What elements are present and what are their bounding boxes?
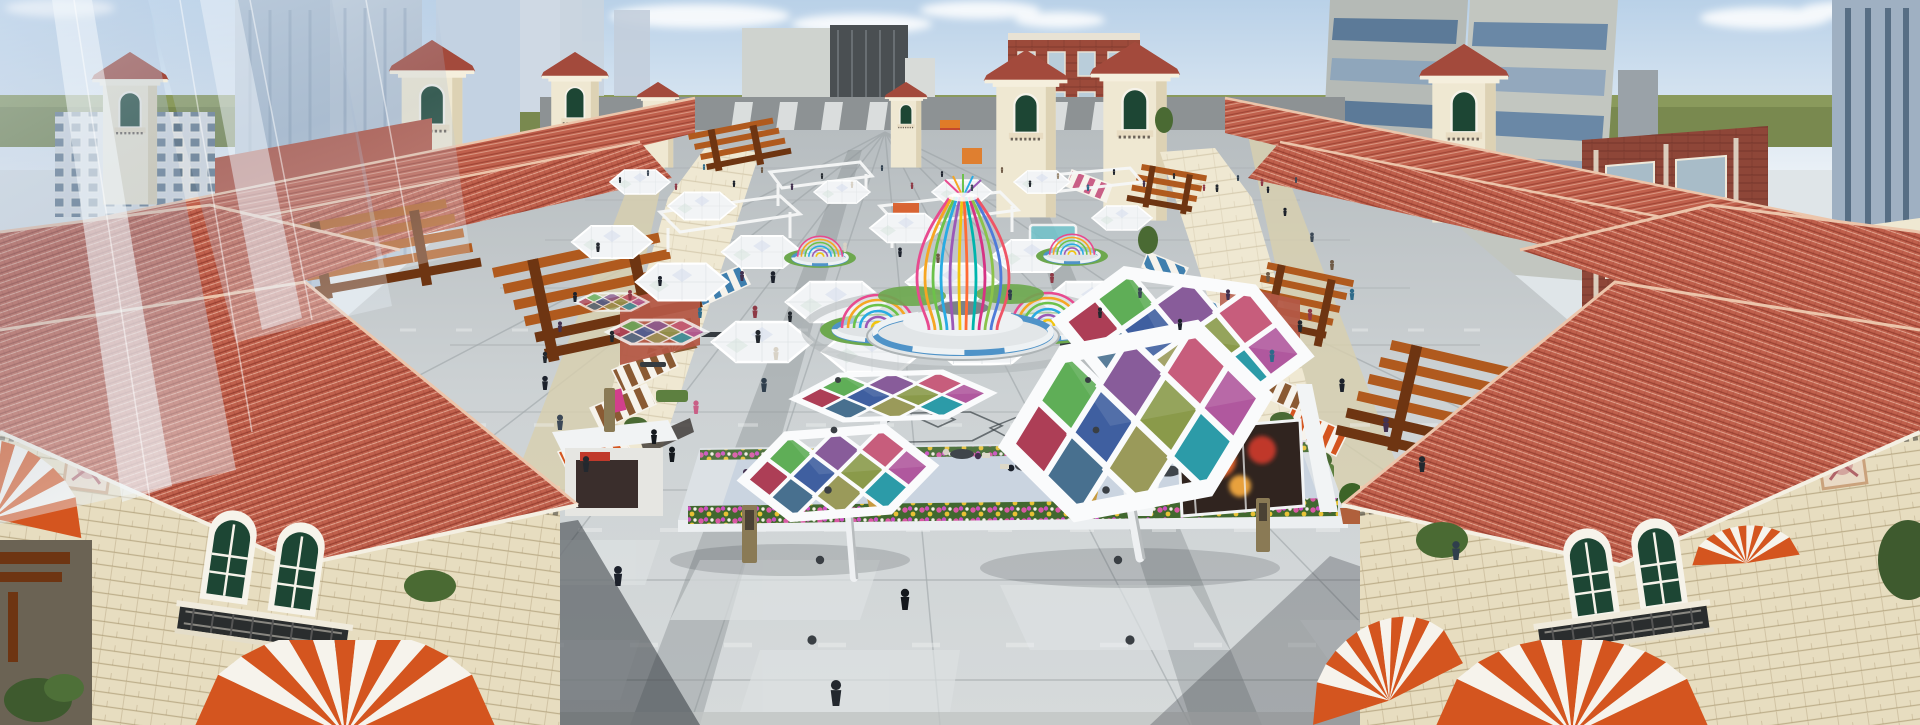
person-figure (1226, 289, 1230, 300)
person-figure (628, 290, 632, 300)
person-figure (1419, 456, 1425, 472)
person-figure (651, 429, 657, 444)
person-figure (1267, 187, 1270, 193)
person-figure (1178, 319, 1183, 330)
person-figure (557, 415, 563, 430)
person-figure (1113, 169, 1115, 175)
person-figure (1261, 179, 1264, 186)
person-figure (771, 271, 776, 283)
person-figure (543, 352, 548, 363)
person-figure (761, 167, 763, 173)
person-figure (703, 164, 705, 170)
person-figure (1098, 307, 1102, 318)
person-figure (831, 680, 842, 706)
person-figure (619, 177, 621, 183)
person-figure (669, 447, 675, 462)
person-figure (1050, 273, 1054, 283)
person-figure (941, 171, 943, 177)
person-figure (675, 184, 678, 190)
tile-roof-tower (884, 82, 927, 168)
person-figure (698, 307, 702, 318)
person-figure (791, 184, 794, 190)
person-figure (1308, 309, 1313, 320)
person-figure (542, 376, 548, 390)
person-figure (821, 173, 823, 179)
person-figure (1350, 289, 1355, 300)
architectural-rendering (0, 0, 1920, 725)
person-figure (1203, 185, 1206, 191)
person-figure (1295, 177, 1297, 183)
person-figure (740, 271, 744, 281)
person-figure (573, 292, 577, 302)
person-figure (1452, 541, 1460, 560)
person-figure (1143, 181, 1146, 187)
person-figure (1138, 287, 1142, 298)
person-figure (1237, 175, 1239, 181)
person-figure (558, 321, 562, 332)
person-figure (843, 243, 847, 252)
person-figure (1173, 173, 1175, 179)
person-figure (898, 248, 902, 257)
person-figure (1057, 173, 1059, 179)
person-figure (788, 311, 792, 322)
person-figure (1383, 417, 1389, 432)
wall-vine (404, 570, 456, 602)
person-figure (1339, 378, 1345, 392)
person-figure (1087, 185, 1090, 191)
person-figure (693, 400, 699, 414)
person-figure (881, 165, 883, 171)
dark-side-annex (0, 540, 92, 725)
person-figure (1310, 233, 1314, 242)
person-figure (1269, 350, 1274, 362)
person-figure (752, 306, 757, 318)
person-figure (610, 331, 615, 342)
person-figure (936, 254, 940, 263)
person-figure (1266, 272, 1270, 282)
person-figure (647, 170, 649, 176)
person-figure (911, 183, 914, 189)
colored-hex-canopy (576, 293, 649, 311)
person-figure (971, 185, 974, 191)
person-figure (1330, 260, 1334, 270)
colored-hex-canopy (607, 319, 708, 344)
person-figure (773, 347, 778, 360)
person-figure (1215, 184, 1218, 192)
person-figure (1298, 320, 1303, 332)
person-figure (1029, 181, 1032, 187)
person-figure (901, 589, 910, 610)
person-figure (596, 243, 600, 252)
person-figure (851, 182, 854, 188)
person-figure (733, 181, 736, 187)
wall-vine (1416, 522, 1468, 558)
person-figure (761, 378, 767, 392)
person-figure (755, 330, 760, 343)
person-figure (1001, 167, 1003, 173)
person-figure (614, 566, 622, 586)
person-figure (658, 276, 662, 286)
person-figure (1008, 289, 1012, 300)
plaza-scene (0, 0, 1920, 725)
person-figure (583, 456, 589, 472)
person-figure (1283, 208, 1286, 216)
